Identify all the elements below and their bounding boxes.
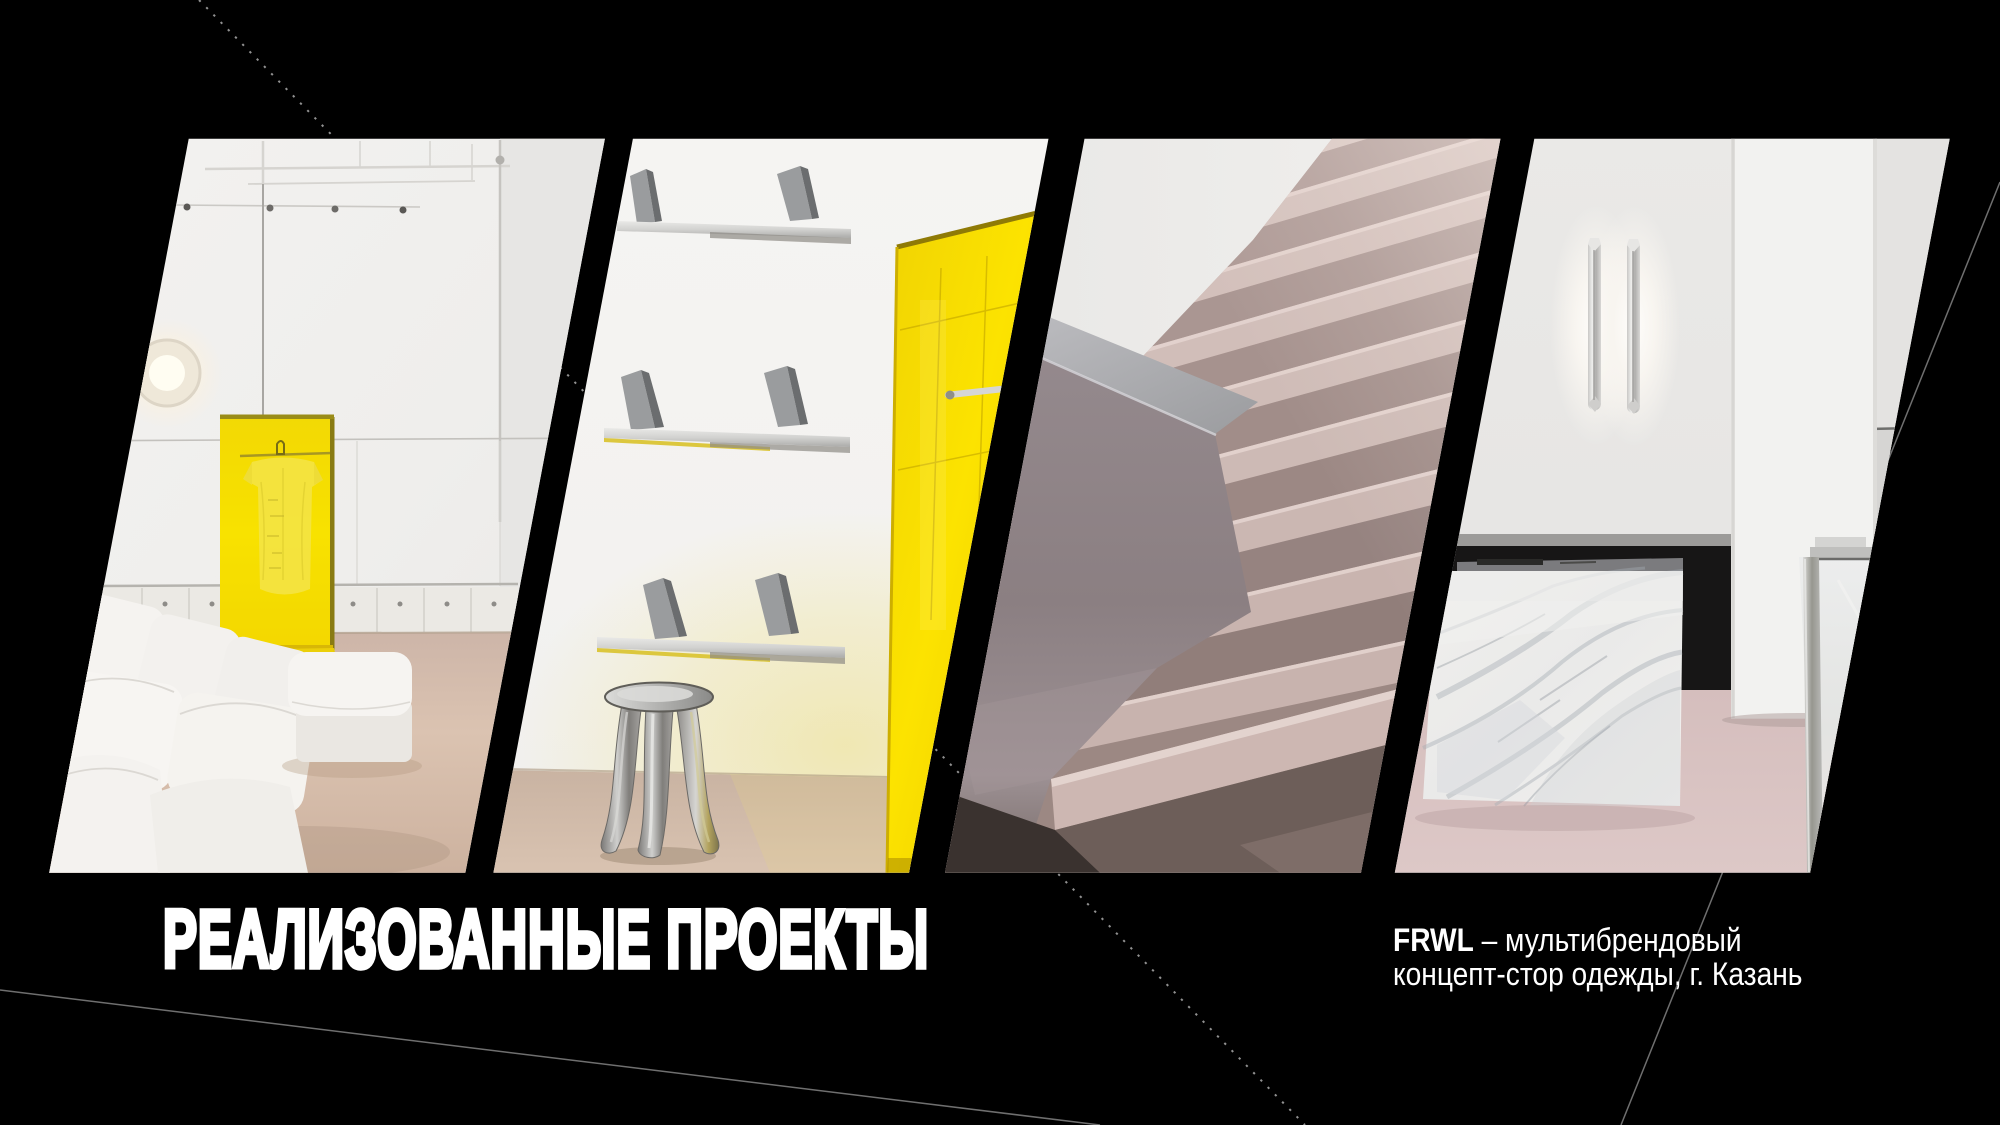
svg-text:концепт-стор одежды, г. Казань: концепт-стор одежды, г. Казань bbox=[1393, 957, 1802, 992]
svg-text:FRWL – мультибрендовый: FRWL – мультибрендовый bbox=[1393, 923, 1742, 958]
svg-text:РЕАЛИЗОВАННЫЕ ПРОЕКТЫ: РЕАЛИЗОВАННЫЕ ПРОЕКТЫ bbox=[163, 894, 929, 985]
